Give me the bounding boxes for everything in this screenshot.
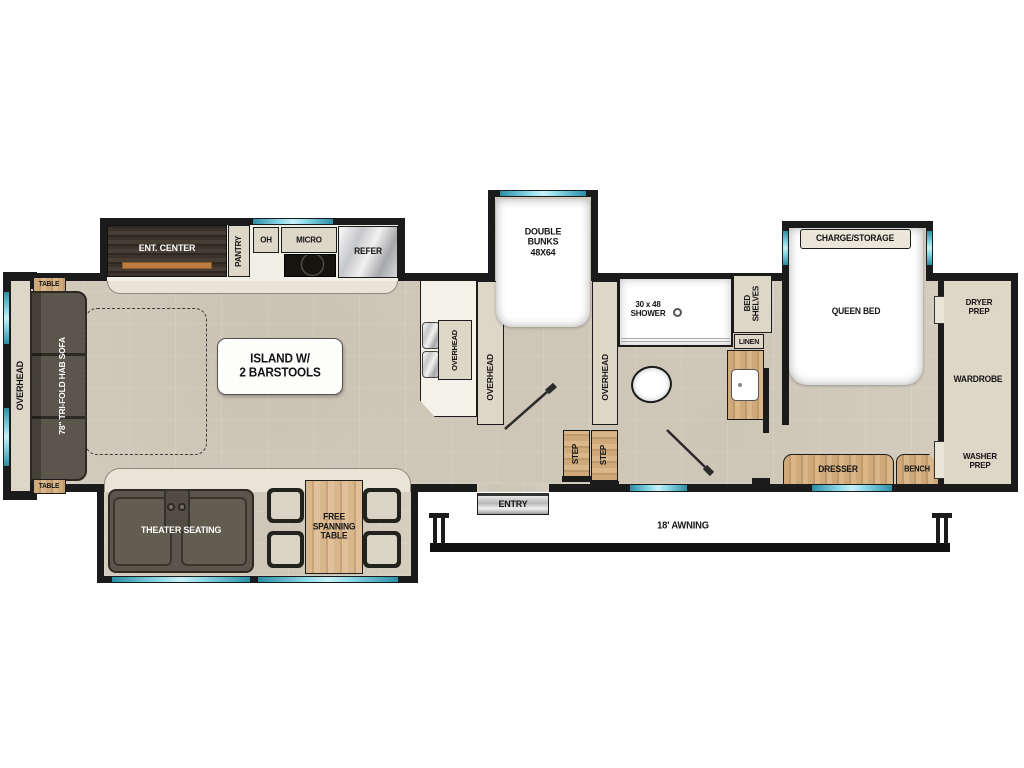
awning-left-bracket-leg1 — [433, 517, 437, 544]
bunkroom-overhead-right-box: OVERHEAD — [592, 330, 618, 425]
wall-bottom-mid — [411, 484, 477, 492]
sofa-overhead-label: OVERHEAD — [16, 361, 25, 410]
counter-overhead-cabinet: OVERHEAD — [438, 320, 472, 380]
microwave-label: MICRO — [296, 235, 322, 244]
window-queen-right — [927, 231, 932, 265]
window-sofa-slide-1 — [4, 292, 9, 344]
queen-slide-wall-top — [782, 221, 933, 228]
entry-label: ENTRY — [498, 500, 527, 510]
pantry-label: PANTRY — [235, 236, 243, 267]
pantry: PANTRY — [228, 225, 250, 277]
free-spanning-table-label: FREE SPANNING TABLE — [313, 512, 356, 541]
table-rear-label: TABLE — [39, 483, 60, 491]
window-kitchen-slide — [253, 219, 333, 224]
dining-chair-1 — [267, 488, 304, 523]
entertainment-center-label: ENT. CENTER — [139, 244, 195, 254]
step-2: STEP — [591, 430, 618, 481]
awning-left-bracket-leg2 — [441, 517, 445, 544]
awning-right-bracket-cap — [932, 513, 952, 518]
wardrobe-label: WARDROBE — [954, 375, 1003, 385]
vanity-sink — [731, 369, 759, 401]
window-bunk-slide — [500, 191, 586, 196]
dresser-label: DRESSER — [818, 465, 858, 475]
shower-drain — [673, 308, 682, 317]
queen-bed-label: QUEEN BED — [832, 307, 881, 317]
window-lower-slide-1 — [112, 577, 250, 582]
awning-left-bracket-cap — [429, 513, 449, 518]
step-2-tread — [590, 481, 619, 487]
awning-right-bracket-leg2 — [944, 517, 948, 544]
floorplan-canvas: OVERHEAD TABLE 78" TRI-FOLD HAB SOFA TAB… — [0, 0, 1024, 768]
window-bottom-bedroom — [812, 485, 892, 491]
dining-chair-3-cushion — [271, 535, 300, 564]
dining-chair-2 — [363, 488, 401, 523]
window-queen-left — [783, 231, 788, 265]
double-bunks-bed — [496, 199, 590, 327]
theater-seating-label: THEATER SEATING — [141, 526, 221, 536]
window-sofa-slide-2 — [4, 408, 9, 466]
washer-prep-label: WASHER PREP — [963, 452, 997, 470]
step-1-label: STEP — [572, 444, 580, 464]
window-lower-slide-2 — [258, 577, 398, 582]
bunkroom-overhead-right-label: OVERHEAD — [601, 354, 610, 401]
dining-chair-4 — [363, 531, 401, 568]
bunkroom-overhead-left-box: OVERHEAD — [477, 330, 504, 425]
sofa-overhead-cabinet: OVERHEAD — [10, 280, 31, 492]
step-1: STEP — [563, 430, 590, 478]
entry-opening — [477, 484, 549, 492]
double-bunks-label: DOUBLE BUNKS 48X64 — [525, 228, 562, 259]
bed-shelves-label: BED SHELVES — [744, 286, 761, 321]
shower-door-track — [621, 338, 730, 342]
window-bottom-hall — [630, 485, 687, 491]
wall-top-d — [926, 273, 1018, 281]
awning-label: 18' AWNING — [657, 522, 709, 533]
refrigerator-label: REFER — [354, 247, 382, 257]
awning-bar — [430, 543, 950, 552]
counter-overhead-label: OVERHEAD — [451, 330, 459, 371]
tri-fold-sofa-labelbox: 78" TRI-FOLD HAB SOFA — [38, 291, 87, 481]
cupholder-2 — [178, 503, 186, 511]
entertainment-center-shelf — [122, 262, 212, 269]
tri-fold-sofa-label: 78" TRI-FOLD HAB SOFA — [58, 337, 67, 435]
dining-chair-3 — [267, 531, 304, 568]
table-front-label: TABLE — [39, 281, 60, 289]
step-1-tread — [562, 476, 591, 482]
wall-right-end — [1011, 273, 1018, 492]
linen-label: LINEN — [739, 338, 759, 346]
bunk-slide-wall-left — [488, 190, 495, 281]
dining-chair-1-cushion — [271, 492, 300, 519]
bunk-slide-wall-right — [591, 190, 598, 281]
stove — [284, 254, 336, 277]
dining-chair-2-cushion — [367, 492, 397, 519]
bath-bedroom-divider — [763, 368, 769, 433]
shower-label: 30 x 48 SHOWER — [631, 300, 666, 318]
charge-storage-label: CHARGE/STORAGE — [816, 234, 894, 244]
dryer-prep-label: DRYER PREP — [966, 298, 993, 316]
kitchen-slide-wall-right — [398, 218, 405, 281]
lower-slide-wall-left — [97, 484, 104, 583]
vanity-sink-drain — [738, 383, 742, 387]
oh-cabinet-label: OH — [260, 235, 272, 244]
awning-right-bracket-leg1 — [936, 517, 940, 544]
wall-bottom-right — [549, 484, 1018, 492]
bed-shelves: BED SHELVES — [733, 275, 772, 333]
dining-chair-4-cushion — [367, 535, 397, 564]
island-label: ISLAND W/ 2 BARSTOOLS — [239, 352, 320, 381]
step-2-label: STEP — [600, 445, 608, 465]
slide-travel-outline — [85, 308, 207, 455]
lower-slide-wall-right — [411, 484, 418, 583]
bunkroom-overhead-left-label: OVERHEAD — [486, 354, 495, 401]
cupholder-1 — [167, 503, 175, 511]
kitchen-slide-wall-left — [100, 218, 107, 281]
bench-label: BENCH — [904, 466, 930, 475]
bedroom-door-frame — [752, 478, 770, 484]
kitchen-slide-opening — [107, 281, 398, 294]
wall-top-b — [398, 273, 495, 281]
